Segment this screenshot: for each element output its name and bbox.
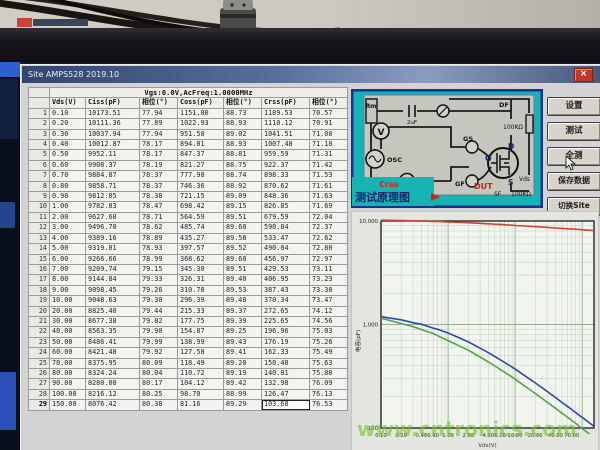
gs-label: GS [463,135,473,143]
table-cell[interactable]: 310.70 [178,285,224,295]
table-cell[interactable]: 777.98 [178,171,224,181]
table-cell[interactable]: 100.00 [50,389,86,399]
column-header[interactable]: 相位(°) [140,98,178,108]
row-number[interactable]: 21 [29,316,50,326]
monitor-bezel [0,28,600,64]
table-cell[interactable]: 78.38 [140,192,178,202]
table-cell[interactable]: 89.53 [224,285,262,295]
table-cell[interactable]: 9496.70 [86,223,140,233]
table-cell[interactable]: 118.49 [178,358,224,368]
table-cell[interactable]: 894.01 [178,140,224,150]
row-number[interactable]: 28 [29,389,50,399]
vds-label: Vds [519,176,530,183]
table-cell[interactable]: 8324.24 [86,368,140,378]
table-cell[interactable]: 71.69 [310,202,348,212]
table-cell[interactable]: 79.92 [140,348,178,358]
table-cell[interactable]: 397.57 [178,244,224,254]
svg-text:0.40: 0.40 [416,433,428,439]
table-row: 90.909812.0578.38721.1589.09848.3671.63 [29,192,348,202]
table-cell[interactable]: 1007.48 [262,140,310,150]
background-window-fragment [0,372,16,430]
table-cell[interactable]: 78.37 [140,181,178,191]
table-cell[interactable]: 8486.41 [86,337,140,347]
red-object [17,18,32,27]
table-cell[interactable]: 10173.51 [86,108,140,118]
table-cell[interactable]: 9812.05 [86,192,140,202]
table-cell[interactable]: 162.33 [262,348,310,358]
table-cell[interactable]: 71.53 [310,171,348,181]
row-number[interactable]: 26 [29,368,50,378]
table-cell[interactable]: 72.80 [310,244,348,254]
table-cell[interactable]: 72.04 [310,212,348,222]
table-cell[interactable]: 590.84 [262,223,310,233]
table-cell[interactable]: 80.00 [50,368,86,378]
table-cell[interactable]: 71.18 [310,140,348,150]
row-number[interactable]: 17 [29,275,50,285]
table-cell[interactable]: 951.58 [178,129,224,139]
table-cell[interactable]: 88.73 [224,108,262,118]
table-cell[interactable]: 103.68 [262,400,310,410]
table-cell[interactable]: 0.80 [50,181,86,191]
table-cell[interactable]: 1110.12 [262,119,310,129]
table-cell[interactable]: 196.96 [262,327,310,337]
table-cell[interactable]: 50.00 [50,337,86,347]
table-cell[interactable]: 75.26 [310,337,348,347]
table-cell[interactable]: 8375.95 [86,358,140,368]
table-cell[interactable]: 132.98 [262,379,310,389]
table-cell[interactable]: 78.17 [140,150,178,160]
table-cell[interactable]: 75.88 [310,368,348,378]
caption-title: 测试原理图 [355,190,410,204]
s-label: S [508,178,513,187]
table-cell[interactable]: 89.09 [224,192,262,202]
test-button[interactable]: 测试 [547,122,600,141]
table-cell[interactable]: 70.57 [310,108,348,118]
column-header[interactable]: Crss(pF) [262,98,310,108]
svg-text:电容(pF): 电容(pF) [354,330,362,352]
table-row: 70.709884.8778.37777.9888.74898.3371.53 [29,171,348,181]
table-cell[interactable]: 30.00 [50,316,86,326]
screen: Site AMPS528 2019.10 × Vgs:0.0V,AcFreq:1… [0,62,600,450]
table-row: 2240.008563.3579.90154.8789.25196.9675.0… [29,327,348,337]
table-cell[interactable]: 9.00 [50,285,86,295]
table-cell[interactable]: 78.89 [140,233,178,243]
table-cell[interactable]: 88.93 [224,119,262,129]
app-window: Site AMPS528 2019.10 × Vgs:0.0V,AcFreq:1… [20,64,600,450]
table-cell[interactable]: 435.27 [178,233,224,243]
table-cell[interactable]: 75.03 [310,327,348,337]
table-cell[interactable]: 1189.53 [262,108,310,118]
row-number[interactable]: 27 [29,379,50,389]
table-cell[interactable]: 8280.08 [86,379,140,389]
row-number[interactable]: 23 [29,337,50,347]
table-row: 80.809858.7178.37746.3688.92870.6271.61 [29,181,348,191]
table-cell[interactable]: 6.00 [50,254,86,264]
save-data-button[interactable]: 保存数据 [547,172,600,191]
row-number[interactable]: 14 [29,244,50,254]
table-cell[interactable]: 7.00 [50,264,86,274]
table-cell[interactable]: 150.48 [262,358,310,368]
table-cell[interactable]: 370.34 [262,296,310,306]
table-cell[interactable]: 88.93 [224,140,262,150]
table-cell[interactable]: 79.99 [140,337,178,347]
table-cell[interactable]: 3.00 [50,223,86,233]
table-cell[interactable]: 79.30 [140,296,178,306]
table-row: 2680.008324.2480.04110.7289.19140.8175.8… [29,368,348,378]
table-cell[interactable]: 821.27 [178,160,224,170]
table-cell[interactable]: 225.65 [262,316,310,326]
table-cell[interactable]: 9144.84 [86,275,140,285]
table-cell[interactable]: 296.39 [178,296,224,306]
table-cell[interactable]: 8.00 [50,275,86,285]
table-cell[interactable]: 89.39 [224,316,262,326]
d-label: D [508,142,514,151]
row-number[interactable]: 24 [29,348,50,358]
table-cell[interactable]: 79.82 [140,316,178,326]
table-row: 20.2010111.3677.891022.9388.931110.1270.… [29,119,348,129]
svg-text:0.20: 0.20 [395,433,407,439]
table-cell[interactable]: 89.20 [224,358,262,368]
table-cell[interactable]: 80.38 [140,400,178,410]
table-row: 40.4010012.8778.17894.0188.931007.4871.1… [29,140,348,150]
table-cell[interactable]: 78.71 [140,212,178,222]
table-cell[interactable]: 89.48 [224,296,262,306]
table-cell[interactable]: 73.23 [310,275,348,285]
row-number[interactable]: 10 [29,202,50,212]
caption-series: Crss [379,180,399,189]
table-cell[interactable]: 0.40 [50,140,86,150]
svg-text:0.60: 0.60 [427,433,439,439]
svg-text:2.00: 2.00 [463,433,475,439]
table-cell[interactable]: 10111.36 [86,119,140,129]
table-cell[interactable]: 78.99 [140,254,178,264]
table-cell[interactable]: 959.59 [262,150,310,160]
table-cell[interactable]: 88.81 [224,150,262,160]
table-cell[interactable]: 368.62 [178,254,224,264]
table-cell[interactable]: 60.00 [50,348,86,358]
table-cell[interactable]: 485.74 [178,223,224,233]
table-cell[interactable]: 77.94 [140,129,178,139]
table-cell[interactable]: 98.70 [178,389,224,399]
table-cell[interactable]: 73.38 [310,285,348,295]
table-cell[interactable]: 9908.37 [86,160,140,170]
column-header[interactable]: Coss(pF) [178,98,224,108]
table-cell[interactable]: 72.37 [310,223,348,233]
table-cell[interactable]: 70.00 [50,358,86,368]
condition-header: Vgs:0.0V,AcFreq:1.0000MHz [50,88,348,98]
table-cell[interactable]: 79.26 [140,285,178,295]
table-row: 112.009627.6878.71564.5989.51679.5972.04 [29,212,348,222]
table-cell[interactable]: 177.75 [178,316,224,326]
column-header[interactable]: Ciss(pF) [86,98,140,108]
gf-label: GF [455,180,465,188]
svg-text:Vds(V): Vds(V) [478,443,496,449]
table-cell[interactable]: 71.42 [310,160,348,170]
table-cell[interactable]: 88.74 [224,171,262,181]
table-cell[interactable]: 126.47 [262,389,310,399]
column-header[interactable]: 相位(°) [310,98,348,108]
table-cell[interactable]: 848.36 [262,192,310,202]
table-row: 30.3010037.9477.94951.5889.021041.5171.0… [29,129,348,139]
table-cell[interactable]: 140.81 [262,368,310,378]
g-label: G [485,154,491,163]
row-number[interactable]: 8 [29,181,50,191]
table-cell[interactable]: 9319.81 [86,244,140,254]
table-cell[interactable]: 9782.83 [86,202,140,212]
table-cell[interactable]: 533.47 [262,233,310,243]
row-number[interactable]: 13 [29,233,50,243]
table-cell[interactable]: 79.90 [140,327,178,337]
table-cell[interactable]: 89.51 [224,264,262,274]
table-cell[interactable]: 847.37 [178,150,224,160]
table-cell[interactable]: 89.60 [224,223,262,233]
row-number[interactable]: 29 [29,400,50,410]
table-row: 2130.008677.3879.82177.7589.39225.6574.5… [29,316,348,326]
background-window-fragment [0,79,18,139]
table-cell[interactable]: 110.72 [178,368,224,378]
row-number[interactable]: 25 [29,358,50,368]
table-cell[interactable]: 0.20 [50,119,86,129]
osc-label: OSC [387,156,402,164]
table-cell[interactable]: 8677.38 [86,316,140,326]
table-cell[interactable]: 0.30 [50,129,86,139]
table-cell[interactable]: 78.19 [140,160,178,170]
table-cell[interactable]: 138.99 [178,337,224,347]
table-cell[interactable]: 89.29 [224,400,262,410]
table-row: 50.509952.1178.17847.3788.81959.5971.31 [29,150,348,160]
table-cell[interactable]: 8421.48 [86,348,140,358]
table-cell[interactable]: 72.62 [310,233,348,243]
table-row: 2350.008486.4179.99138.9989.43176.1975.2… [29,337,348,347]
window-titlebar[interactable]: Site AMPS528 2019.10 [22,66,600,83]
table-cell[interactable]: 89.37 [224,306,262,316]
table-cell[interactable]: 922.37 [262,160,310,170]
table-cell[interactable]: 1041.51 [262,129,310,139]
dark-object [33,19,88,26]
table-cell[interactable]: 89.41 [224,348,262,358]
table-cell[interactable]: 679.59 [262,212,310,222]
row-number[interactable]: 16 [29,264,50,274]
table-cell[interactable]: 74.12 [310,306,348,316]
condition-header-row: Vgs:0.0V,AcFreq:1.0000MHz [29,88,348,98]
table-cell[interactable]: 10012.87 [86,140,140,150]
table-cell[interactable]: 8076.42 [86,400,140,410]
table-cell[interactable]: 72.97 [310,254,348,264]
table-cell[interactable]: 9209.74 [86,264,140,274]
table-cell[interactable]: 79.44 [140,306,178,316]
table-cell[interactable]: 76.53 [310,400,348,410]
table-cell[interactable]: 0.10 [50,108,86,118]
table-cell[interactable]: 89.43 [224,337,262,347]
table-cell[interactable]: 345.30 [178,264,224,274]
column-header[interactable]: 相位(°) [224,98,262,108]
table-cell[interactable]: 10037.94 [86,129,140,139]
table-cell[interactable]: 5.00 [50,244,86,254]
table-cell[interactable]: 89.60 [224,254,262,264]
row-number[interactable]: 9 [29,192,50,202]
table-cell[interactable]: 89.51 [224,212,262,222]
table-cell[interactable]: 127.58 [178,348,224,358]
table-cell[interactable]: 88.92 [224,181,262,191]
table-cell[interactable]: 74.56 [310,316,348,326]
table-cell[interactable]: 154.87 [178,327,224,337]
table-cell[interactable]: 9389.16 [86,233,140,243]
table-row: 2570.008375.9580.09118.4989.20150.4875.6… [29,358,348,368]
table-cell[interactable]: 721.15 [178,192,224,202]
table-cell[interactable]: 746.36 [178,181,224,191]
column-header[interactable]: Vds(V) [50,98,86,108]
table-row: 2020.008825.4079.44215.3389.37272.6574.1… [29,306,348,316]
table-cell[interactable]: 2.00 [50,212,86,222]
table-cell[interactable]: 76.09 [310,379,348,389]
df-label: DF [499,101,509,109]
svg-text:40.00: 40.00 [548,433,563,439]
table-cell[interactable]: 9627.68 [86,212,140,222]
table-cell[interactable]: 1.00 [50,202,86,212]
table-cell[interactable]: 73.11 [310,264,348,274]
table-cell[interactable]: 272.65 [262,306,310,316]
table-cell[interactable]: 79.15 [140,264,178,274]
table-cell[interactable]: 9884.87 [86,171,140,181]
table-cell[interactable]: 89.25 [224,327,262,337]
table-cell[interactable]: 71.08 [310,129,348,139]
table-cell[interactable]: 77.89 [140,119,178,129]
table-cell[interactable]: 1022.93 [178,119,224,129]
table-cell[interactable]: 89.42 [224,379,262,389]
table-cell[interactable]: 71.31 [310,150,348,160]
table-cell[interactable]: 104.12 [178,379,224,389]
close-button[interactable]: × [574,68,593,82]
row-number[interactable]: 18 [29,285,50,295]
table-cell[interactable]: 80.04 [140,368,178,378]
table-cell[interactable]: 0.60 [50,160,86,170]
background-window-fragment [0,202,15,228]
table-row: 2460.008421.4879.92127.5889.41162.3375.4… [29,348,348,358]
table-cell[interactable]: 826.85 [262,202,310,212]
table-cell[interactable]: 89.40 [224,275,262,285]
table-cell[interactable]: 870.62 [262,181,310,191]
voltmeter-label: V [378,128,385,138]
table-cell[interactable]: 0.70 [50,171,86,181]
table-row: 10.1010173.5177.941151.0088.731189.5370.… [29,108,348,118]
table-cell[interactable]: 0.50 [50,150,86,160]
row-number[interactable]: 22 [29,327,50,337]
table-cell[interactable]: 80.17 [140,379,178,389]
table-cell[interactable]: 9858.71 [86,181,140,191]
table-cell[interactable]: 8563.35 [86,327,140,337]
table-cell[interactable]: 75.49 [310,348,348,358]
table-cell[interactable]: 90.00 [50,379,86,389]
monitor-photo: Site AMPS528 2019.10 × Vgs:0.0V,AcFreq:1… [0,0,600,450]
table-cell[interactable]: 898.33 [262,171,310,181]
table-cell[interactable]: 77.94 [140,108,178,118]
table-cell[interactable]: 76.13 [310,389,348,399]
table-cell[interactable]: 89.58 [224,233,262,243]
table-cell[interactable]: 456.97 [262,254,310,264]
row-number[interactable]: 2 [29,119,50,129]
settings-button[interactable]: 设置 [547,97,600,116]
row-number[interactable]: 12 [29,223,50,233]
table-cell[interactable]: 150.00 [50,400,86,410]
table-cell[interactable]: 8216.12 [86,389,140,399]
table-cell[interactable]: 71.63 [310,192,348,202]
table-row: 134.009389.1678.89435.2789.58533.4772.62 [29,233,348,243]
table-row: 1910.009048.6379.30296.3989.48370.3473.4… [29,296,348,306]
row-number[interactable]: 4 [29,140,50,150]
table-cell[interactable]: 88.75 [224,160,262,170]
table-cell[interactable]: 89.19 [224,368,262,378]
table-cell[interactable]: 89.52 [224,244,262,254]
row-number[interactable]: 11 [29,212,50,222]
table-cell[interactable]: 9048.63 [86,296,140,306]
table-cell[interactable]: 8825.40 [86,306,140,316]
row-number[interactable]: 6 [29,160,50,170]
table-cell[interactable]: 176.19 [262,337,310,347]
table-cell[interactable]: 326.31 [178,275,224,285]
table-cell[interactable]: 73.47 [310,296,348,306]
table-cell[interactable]: 564.59 [178,212,224,222]
table-cell[interactable]: 4.00 [50,233,86,243]
table-cell[interactable]: 78.93 [140,244,178,254]
table-cell[interactable]: 70.91 [310,119,348,129]
table-row: 156.009266.6678.99368.6289.60456.9772.97 [29,254,348,264]
table-cell[interactable]: 9952.11 [86,150,140,160]
svg-text:4.00: 4.00 [483,433,495,439]
table-cell[interactable]: 9266.66 [86,254,140,264]
table-cell[interactable]: 698.42 [178,202,224,212]
table-cell[interactable]: 89.02 [224,129,262,139]
table-cell[interactable]: 75.63 [310,358,348,368]
table-cell[interactable]: 10.00 [50,296,86,306]
table-row: 178.009144.8479.33326.3189.40406.9573.23 [29,275,348,285]
svg-text:6.00: 6.00 [494,433,506,439]
row-number[interactable]: 5 [29,150,50,160]
table-cell[interactable]: 71.61 [310,181,348,191]
table-cell[interactable]: 88.99 [224,389,262,399]
table-cell[interactable]: 490.04 [262,244,310,254]
table-cell[interactable]: 40.00 [50,327,86,337]
table-body: 10.1010173.5177.941151.0088.731189.5370.… [29,108,348,410]
table-cell[interactable]: 215.33 [178,306,224,316]
row-number[interactable]: 1 [29,108,50,118]
table-cell[interactable]: 9098.45 [86,285,140,295]
row-number[interactable]: 19 [29,296,50,306]
table-cell[interactable]: 89.15 [224,202,262,212]
table-cell[interactable]: 78.47 [140,202,178,212]
table-cell[interactable]: 429.53 [262,264,310,274]
table-cell[interactable]: 20.00 [50,306,86,316]
table-cell[interactable]: 78.62 [140,223,178,233]
table-cell[interactable]: 78.17 [140,140,178,150]
measurement-table: Vgs:0.0V,AcFreq:1.0000MHz Vds(V)Ciss(pF)… [28,87,348,411]
table-cell[interactable]: 79.33 [140,275,178,285]
table-cell[interactable]: 387.43 [262,285,310,295]
column-header-row: Vds(V)Ciss(pF)相位(°)Coss(pF)相位(°)Crss(pF)… [29,98,348,108]
table-cell[interactable]: 80.25 [140,389,178,399]
table-cell[interactable]: 78.37 [140,171,178,181]
table-cell[interactable]: 406.95 [262,275,310,285]
table-cell[interactable]: 0.90 [50,192,86,202]
table-cell[interactable]: 1151.00 [178,108,224,118]
row-number[interactable]: 3 [29,129,50,139]
svg-text:70.00: 70.00 [564,433,579,439]
row-number[interactable]: 7 [29,171,50,181]
mouse-cursor [565,155,577,171]
row-number[interactable]: 20 [29,306,50,316]
table-cell[interactable]: 81.16 [178,400,224,410]
table-cell[interactable]: 80.09 [140,358,178,368]
row-number[interactable]: 15 [29,254,50,264]
